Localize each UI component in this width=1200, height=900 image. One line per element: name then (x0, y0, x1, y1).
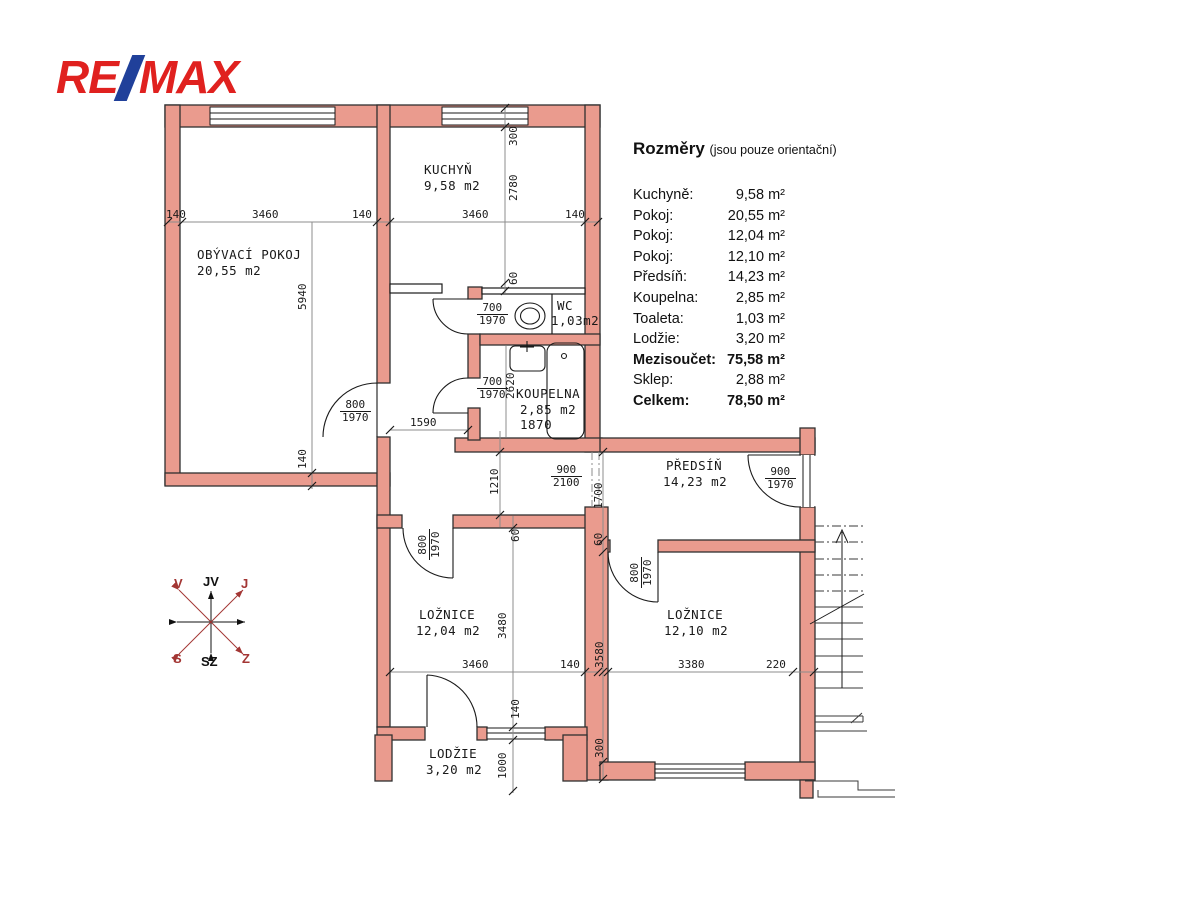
door-arc (433, 378, 468, 413)
wall (585, 105, 600, 452)
door-height: 1970 (765, 479, 796, 491)
door-height: 1970 (430, 530, 442, 561)
dim-label: 300 (593, 738, 606, 758)
wall (600, 762, 655, 780)
legend-value: 1,03 m² (736, 309, 785, 330)
wc-partition-wall (482, 288, 585, 294)
floorplan-drawing (0, 0, 1200, 900)
legend-value: 2,88 m² (736, 370, 785, 391)
legend-label: Celkem: (633, 391, 689, 412)
window (210, 107, 335, 125)
legend-label: Pokoj: (633, 247, 673, 268)
legend-value: 75,58 m² (727, 350, 785, 371)
dim-label: 3460 (462, 658, 489, 671)
compass-label-z: Z (242, 651, 250, 666)
room-name: PŘEDSÍŇ (666, 458, 722, 473)
dim-label: 140 (296, 449, 309, 469)
dim-label: 3460 (462, 208, 489, 221)
room-name: KOUPELNA (516, 386, 580, 401)
room-name: LODŽIE (429, 746, 477, 761)
compass-label-jv: JV (203, 574, 219, 589)
legend-label: Toaleta: (633, 309, 684, 330)
room-area: 1,03m2 (551, 313, 599, 328)
door-height: 1970 (477, 389, 508, 401)
legend-label: Pokoj: (633, 226, 673, 247)
passage-dim: 900 2100 (551, 464, 582, 489)
door-arc (427, 675, 477, 727)
wall (165, 105, 180, 485)
wall (658, 540, 815, 552)
legend-title-text: Rozměry (633, 139, 705, 158)
dim-label: 140 (509, 699, 522, 719)
wall (563, 735, 587, 781)
legend-value: 2,85 m² (736, 288, 785, 309)
door-dim: 800 1970 (417, 530, 442, 561)
dim-label: 5940 (296, 284, 309, 311)
door-height: 1970 (340, 412, 371, 424)
door-dim: 700 1970 (477, 376, 508, 401)
wall (468, 334, 480, 378)
legend-row: Pokoj:20,55 m² (633, 206, 785, 227)
legend-value: 20,55 m² (728, 206, 785, 227)
dim-label: 3480 (496, 613, 509, 640)
room-area: 12,04 m2 (416, 623, 480, 638)
dim-label: 60 (592, 533, 605, 546)
dim-label: 3460 (252, 208, 279, 221)
stair-break-line (810, 594, 864, 624)
legend-value: 78,50 m² (727, 391, 785, 412)
legend-subtitle: (jsou pouze orientační) (710, 143, 837, 157)
legend-label: Sklep: (633, 370, 673, 391)
window (442, 107, 528, 125)
room-name: WC (557, 298, 573, 313)
dim-label: 1590 (410, 416, 437, 429)
legend-label: Koupelna: (633, 288, 698, 309)
legend-title: Rozměry (jsou pouze orientační) (633, 139, 785, 159)
wall (377, 105, 390, 383)
legend-row: Sklep:2,88 m² (633, 370, 785, 391)
door-dim: 800 1970 (340, 399, 371, 424)
legend-row: Koupelna:2,85 m² (633, 288, 785, 309)
wall (600, 438, 815, 452)
dim-label: 60 (507, 272, 520, 285)
wall (377, 437, 390, 727)
window (655, 764, 745, 778)
room-name: OBÝVACÍ POKOJ (197, 247, 301, 262)
compass-label-sz: SZ (201, 654, 218, 669)
door-height: 1970 (477, 315, 508, 327)
stairwell-outline (805, 781, 895, 797)
room-name: LOŽNICE (667, 607, 723, 622)
legend-value: 12,04 m² (728, 226, 785, 247)
legend-row: Lodžie:3,20 m² (633, 329, 785, 350)
legend-value: 9,58 m² (736, 185, 785, 206)
room-area: 20,55 m2 (197, 263, 261, 278)
wall (800, 780, 813, 798)
room-area: 12,10 m2 (664, 623, 728, 638)
legend-row: Pokoj:12,10 m² (633, 247, 785, 268)
wall (375, 735, 392, 781)
legend-row: Kuchyně:9,58 m² (633, 185, 785, 206)
kitchen-counter (390, 284, 442, 293)
door-arc (433, 299, 468, 334)
legend-label: Předsíň: (633, 267, 687, 288)
stair-landing (815, 713, 867, 731)
dim-label: 1000 (496, 753, 509, 780)
legend-label: Kuchyně: (633, 185, 693, 206)
dimensions-legend: Rozměry (jsou pouze orientační) Kuchyně:… (633, 139, 785, 412)
compass-label-v: V (174, 576, 183, 591)
wall (377, 515, 402, 528)
dim-label: 1210 (488, 469, 501, 496)
door-dim: 700 1970 (477, 302, 508, 327)
staircase (805, 526, 895, 797)
wall (745, 762, 815, 780)
room-area: 14,23 m2 (663, 474, 727, 489)
legend-value: 3,20 m² (736, 329, 785, 350)
wall (468, 408, 480, 440)
wall (800, 428, 815, 455)
legend-row: Toaleta:1,03 m² (633, 309, 785, 330)
wall (165, 473, 390, 486)
dim-label: 140 (166, 208, 186, 221)
legend-label: Pokoj: (633, 206, 673, 227)
dim-label: 140 (560, 658, 580, 671)
room-area: 2,85 m2 (520, 402, 576, 417)
dim-label: 140 (565, 208, 585, 221)
wall (468, 287, 482, 299)
sink-icon (510, 341, 545, 371)
legend-row-subtotal: Mezisoučet:75,58 m² (633, 350, 785, 371)
legend-row: Předsíň:14,23 m² (633, 267, 785, 288)
legend-value: 14,23 m² (728, 267, 785, 288)
dim-label: 1700 (592, 483, 605, 510)
legend-row-total: Celkem:78,50 m² (633, 391, 785, 412)
dim-label: 140 (352, 208, 372, 221)
room-width: 1870 (520, 417, 552, 432)
room-area: 3,20 m2 (426, 762, 482, 777)
door-height: 1970 (642, 558, 654, 589)
room-name: KUCHYŇ (424, 162, 472, 177)
compass-label-j: J (241, 576, 248, 591)
legend-label: Mezisoučet: (633, 350, 716, 371)
legend-value: 12,10 m² (728, 247, 785, 268)
legend-row: Pokoj:12,04 m² (633, 226, 785, 247)
wall (453, 515, 600, 528)
floorplan-page: REMAX (0, 0, 1200, 900)
dim-label: 3380 (678, 658, 705, 671)
wall (480, 334, 600, 345)
passage-height: 2100 (551, 477, 582, 489)
wall (477, 727, 487, 740)
dim-label: 3580 (593, 642, 606, 669)
dim-label: 300 (507, 126, 520, 146)
compass-label-s: S (173, 651, 182, 666)
legend-label: Lodžie: (633, 329, 680, 350)
room-name: LOŽNICE (419, 607, 475, 622)
room-area: 9,58 m2 (424, 178, 480, 193)
dim-label: 60 (509, 529, 522, 542)
door-dim: 800 1970 (629, 558, 654, 589)
dim-label: 220 (766, 658, 786, 671)
legend-rows: Kuchyně:9,58 m² Pokoj:20,55 m² Pokoj:12,… (633, 185, 785, 412)
door-dim: 900 1970 (765, 466, 796, 491)
toilet-icon (515, 303, 545, 329)
stair-treads-lower (815, 607, 863, 688)
dim-label: 2780 (507, 175, 520, 202)
